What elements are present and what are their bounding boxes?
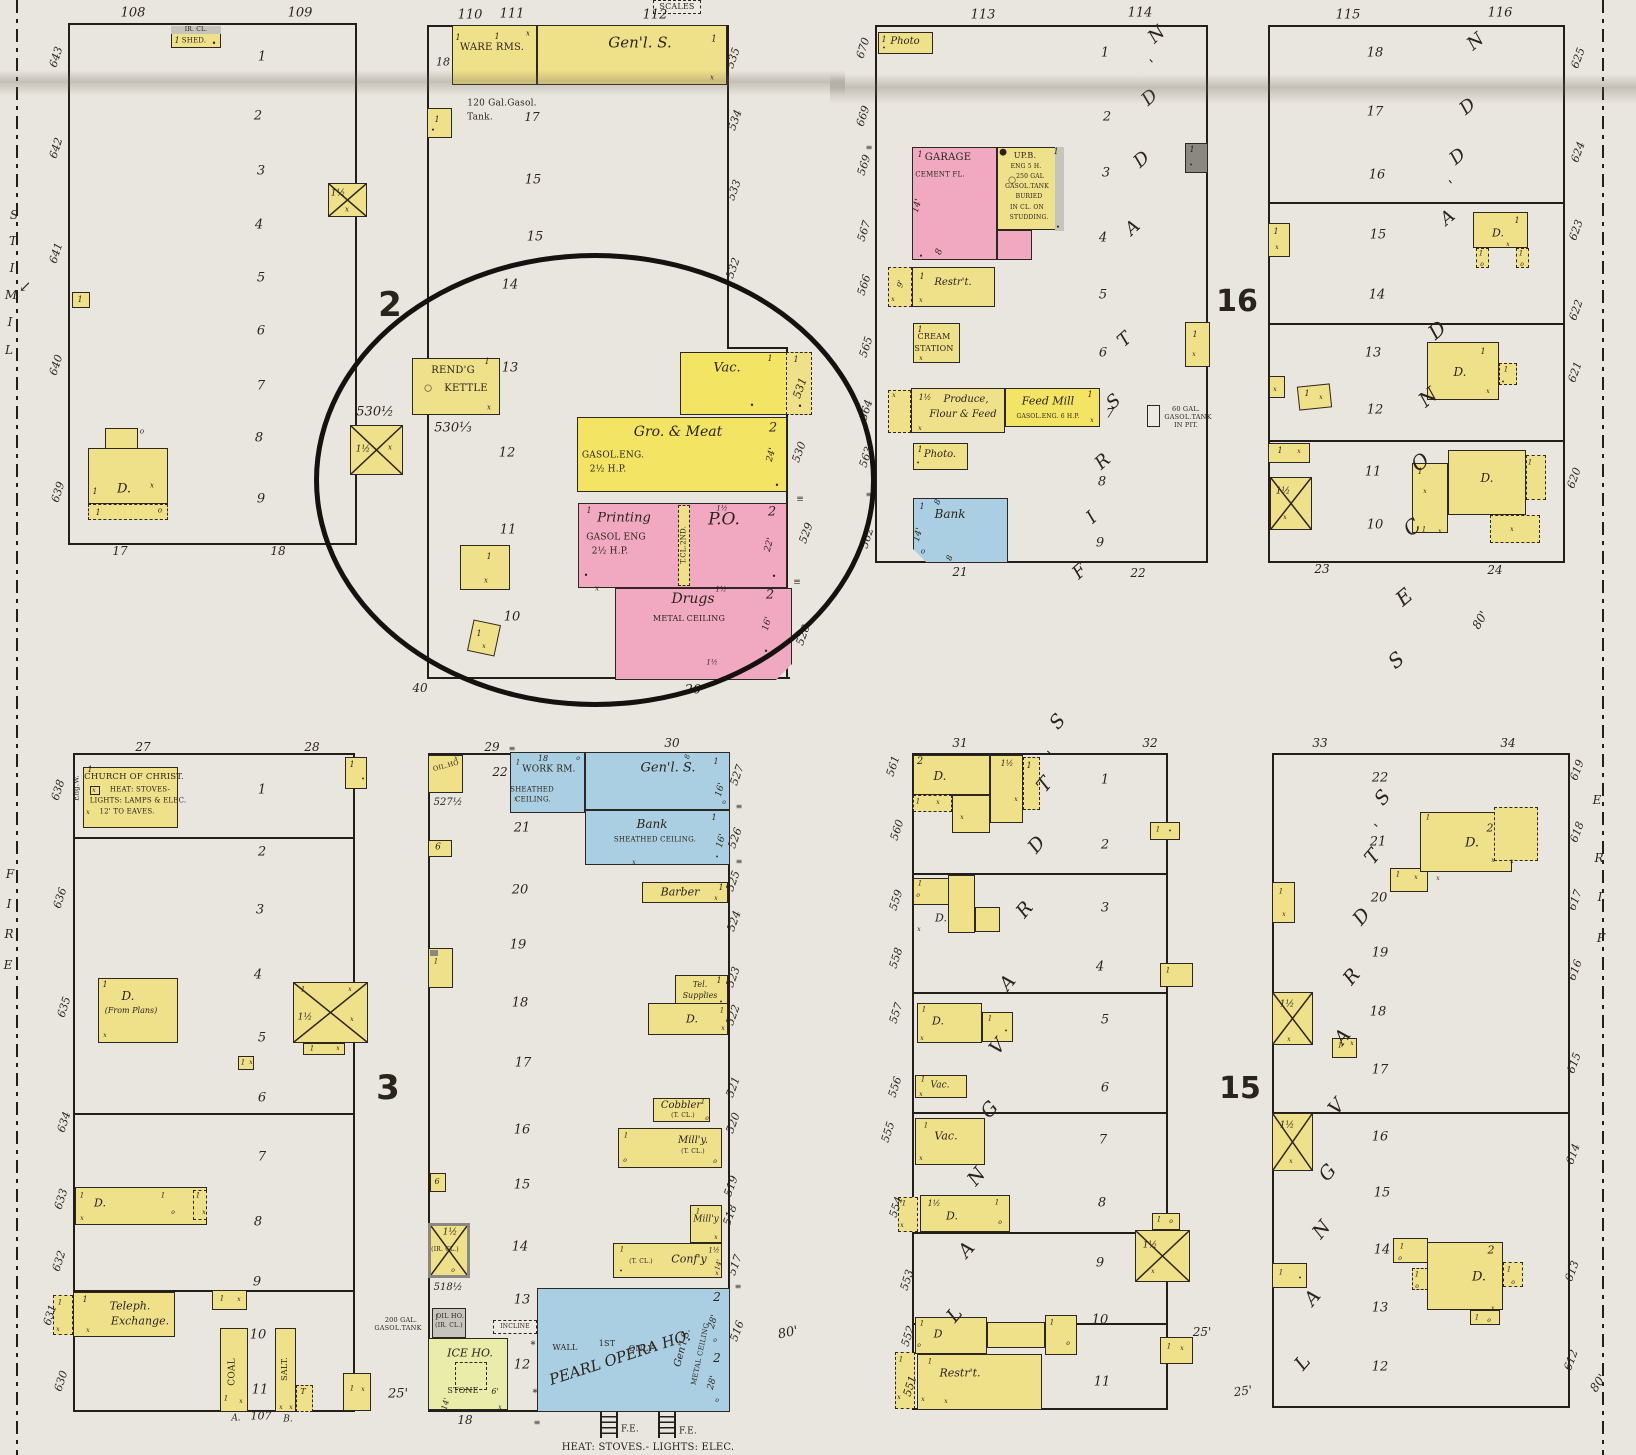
block-108-109-label-11: 5	[257, 272, 265, 285]
block-27-28-label-24: 5	[258, 1032, 266, 1045]
block-31-32-label-51: 1	[922, 1007, 926, 1014]
block-113-114-label-36: x	[891, 297, 894, 303]
block-27-28-label-34: x	[103, 1033, 106, 1039]
block-31-32-building-8	[975, 907, 1000, 932]
block-113-114-label-83: IN PIT.	[1174, 422, 1198, 429]
block-27-28-label-21: 2	[258, 846, 266, 859]
block-29-30-label-75: 1	[620, 1247, 624, 1254]
block-108-109-label-15: 9	[257, 493, 265, 506]
boundary-label-17: 80'	[1588, 1372, 1608, 1394]
block-33-34-label-44: 1	[1415, 1272, 1419, 1279]
block-113-114-label-64: 4	[1099, 232, 1107, 245]
block-27-28-label-7: 632	[51, 1249, 68, 1272]
block-27-28-label-25: 6	[258, 1092, 266, 1105]
block-27-28-label-29: 10	[250, 1329, 267, 1342]
block-29-30-label-107: 2	[713, 1352, 721, 1364]
block-110-112-label-77: 40	[412, 682, 427, 694]
block-33-34-label-46: D.	[1472, 1271, 1486, 1284]
map-line-14	[1268, 440, 1565, 442]
block-115-116-label-20: D.	[1453, 366, 1466, 378]
block-33-34-label-38: 1½	[1280, 1122, 1294, 1131]
block-29-30-label-54: Tel.	[693, 981, 708, 989]
boundary-label-12: R	[1594, 852, 1603, 864]
block-31-32-label-20: 8	[1098, 1197, 1106, 1210]
block-15-number: 15	[1219, 1074, 1261, 1104]
block-29-30-label-110: o	[715, 1398, 719, 1404]
block-29-30-label-98: 25'	[388, 1388, 408, 1401]
block-27-28-label-3: 636	[52, 886, 69, 909]
block-113-114-label-81: 60 GAL.	[1172, 406, 1200, 413]
block-31-32-building-5	[1150, 822, 1180, 840]
block-27-28-label-68: 107	[251, 1411, 272, 1422]
block-113-114-label-68: 9	[1096, 537, 1104, 550]
block-29-30-building-3	[430, 950, 438, 956]
block-29-30-label-32: 12	[514, 1359, 531, 1372]
block-27-28-label-50: Teleph.	[110, 1301, 151, 1312]
block-33-34-label-7: 17	[1372, 1064, 1389, 1077]
block-27-28-label-6: 633	[53, 1187, 70, 1210]
block-33-34-label-29: x	[1414, 875, 1417, 881]
block-29-30-label-93: ICE HO.	[447, 1348, 493, 1359]
block-33-34-label-27: x	[1510, 859, 1513, 865]
block-108-109-label-22: 1	[77, 296, 82, 304]
block-115-116-label-32: D.	[1480, 472, 1493, 484]
block-115-116-label-4: 16	[1369, 169, 1386, 182]
boundary-label-4: I	[8, 316, 13, 328]
block-29-30-label-17: ≡	[735, 1283, 742, 1291]
block-31-32-label-49: 1	[1166, 968, 1170, 975]
block-113-114-building-14	[1185, 322, 1210, 367]
block-113-114-label-5: 567	[856, 219, 873, 242]
x-cross-icon	[1136, 1231, 1189, 1281]
block-115-116-label-56: 23	[1314, 563, 1329, 575]
block-115-116-label-55: 620	[1565, 466, 1583, 489]
block-27-28-label-46: 1	[161, 1193, 165, 1200]
block-113-114-label-31: 1	[1053, 148, 1058, 156]
block-29-30-label-58: D.	[686, 1014, 698, 1025]
block-110-112-label-4: WARE RMS.	[460, 43, 524, 53]
block-31-32-label-60: x	[919, 1156, 922, 1162]
block-113-114-label-40: 1	[917, 326, 922, 334]
block-33-34-label-51: 1	[1475, 1315, 1479, 1322]
block-108-109-label-4: 641	[48, 241, 65, 264]
block-108-109-label-20: 1	[174, 37, 179, 45]
block-27-28-label-48: 1	[196, 1193, 200, 1200]
block-113-114-label-15: •	[882, 46, 886, 52]
block-29-30-label-49: x	[632, 860, 635, 866]
block-29-30-label-114: F.E.	[679, 1428, 697, 1437]
map-line-15	[73, 837, 355, 839]
block-29-30-label-57: •	[719, 1000, 723, 1006]
block-29-30-label-24: 20	[512, 884, 529, 897]
block-108-109-label-18: IR. CL.	[185, 27, 208, 33]
block-108-109-label-0: 108	[121, 7, 146, 20]
block-3-number: 3	[376, 1071, 400, 1105]
block-113-114-label-55: Bank	[935, 508, 966, 520]
block-29-30-label-51: Barber	[661, 887, 700, 898]
block-29-30-label-115: 18	[457, 1414, 472, 1426]
block-29-30-label-29: 15	[514, 1179, 531, 1192]
block-108-109-label-21: •	[212, 40, 217, 48]
block-29-30-label-68: o	[623, 1158, 627, 1164]
block-31-32-label-56: 1	[921, 1077, 925, 1084]
block-115-116-label-51: 624	[1569, 140, 1587, 163]
block-31-32-label-22: 10	[1092, 1314, 1109, 1327]
block-33-34-label-2: 22	[1372, 772, 1389, 785]
block-29-30-label-15: ≡	[736, 803, 743, 811]
block-31-32-label-74: 1	[1050, 1320, 1054, 1327]
block-115-116-label-2: 18	[1367, 47, 1384, 60]
block-29-30-label-66: (T. CL.)	[681, 1149, 705, 1155]
block-115-116-label-11: 1	[1273, 228, 1278, 236]
block-31-32-label-36: D.	[933, 770, 946, 782]
block-29-30-label-37: 1	[516, 760, 520, 767]
block-29-30-label-82: 6	[434, 1178, 439, 1186]
block-31-32-label-15: 3	[1101, 902, 1109, 915]
block-31-32-label-5: 558	[888, 946, 905, 969]
block-115-116-label-37: x	[1438, 529, 1441, 535]
block-33-34-label-26: x	[1491, 858, 1494, 864]
block-113-114-label-56: 1	[919, 503, 924, 511]
block-115-116-label-5: 15	[1370, 229, 1387, 242]
block-29-30-label-74: Conf'y	[671, 1254, 706, 1265]
block-110-112-label-19: •	[431, 128, 435, 135]
dwelling-lot5	[917, 1003, 982, 1043]
block-29-30-label-3: 527	[728, 763, 746, 786]
block-27-28-label-63: x	[289, 1405, 292, 1411]
block-110-112-label-0: 110	[458, 9, 483, 22]
block-108-109-label-23: 1½	[331, 190, 345, 199]
block-33-34-label-34: 1½	[1280, 1001, 1294, 1010]
block-29-30-label-14: 516	[728, 1319, 746, 1342]
block-27-28-label-69: B.	[283, 1416, 292, 1425]
dwelling-lot10	[915, 1317, 987, 1354]
block-33-34-label-3: 21	[1370, 836, 1387, 849]
block-29-30-label-2: ≡	[509, 745, 516, 753]
block-113-114-label-61: 1	[1101, 47, 1109, 60]
block-31-32-label-50: D.	[932, 1016, 944, 1027]
boundary-label-7: F	[6, 868, 14, 880]
block-33-34-label-9: 15	[1374, 1187, 1391, 1200]
block-29-30-label-27: 17	[515, 1057, 532, 1070]
block-29-30-label-36: CEILING.	[515, 797, 551, 804]
block-29-30-label-20: x	[454, 756, 457, 762]
block-115-116-label-7: 13	[1365, 347, 1382, 360]
block-113-114-label-85: •	[1189, 163, 1193, 169]
boundary-label-16: 80'	[1470, 609, 1490, 631]
block-29-30-label-84: (IR. CL.)	[431, 1247, 459, 1253]
block-29-30-label-86: 518½	[434, 1283, 463, 1293]
block-33-34-label-30: x	[1436, 876, 1439, 882]
block-115-116-label-9: 11	[1365, 466, 1382, 479]
block-31-32-label-61: 1	[902, 1201, 906, 1208]
block-113-114-label-4: 569	[856, 153, 873, 176]
block-115-116-label-26: 1	[1304, 390, 1309, 398]
block-27-28-label-43: D.	[94, 1198, 106, 1209]
block-29-30-label-80: 6	[435, 844, 441, 853]
boundary-label-1: T	[9, 235, 17, 247]
block-115-116-label-24: •	[1501, 380, 1505, 386]
block-113-114-label-44: Flour & Feed	[929, 410, 996, 420]
block-31-32-label-8: 555	[880, 1120, 897, 1143]
block-113-114-label-47: Feed Mill	[1022, 396, 1074, 407]
block-110-112-label-6: 1	[494, 33, 499, 41]
block-108-109-label-14: 8	[255, 432, 263, 445]
map-line-13	[1268, 323, 1565, 325]
block-27-28-label-61: SALT.	[281, 1357, 289, 1381]
block-33-34-label-31: 1	[1426, 815, 1430, 822]
block-110-112-label-1: 111	[500, 8, 525, 21]
block-29-30-label-31: 13	[514, 1294, 531, 1307]
block-33-34-label-25: 2	[1487, 823, 1494, 834]
block-33-34-label-40: 1	[1279, 1270, 1283, 1277]
block-29-30-label-21: 527½	[434, 798, 463, 808]
block-113-114-label-7: 565	[858, 335, 875, 358]
block-29-30-label-105: 2	[713, 1291, 721, 1303]
block-33-34-label-41: •	[1298, 1276, 1302, 1282]
block-29-30-label-59: 1	[720, 1008, 724, 1015]
block-31-32-building-23	[1160, 1337, 1193, 1364]
block-113-114-label-52: Photo.	[924, 450, 956, 460]
block-110-112-label-7: x	[526, 31, 530, 38]
block-31-32-label-2: 561	[885, 754, 902, 777]
block-29-30-label-63: 1	[701, 1099, 705, 1106]
block-113-114-label-24: ENG 5 H.	[1011, 164, 1042, 170]
block-110-112-label-17: 17	[524, 111, 539, 123]
block-31-32-label-14: 2	[1101, 839, 1109, 852]
block-27-28-label-26: 7	[258, 1151, 266, 1164]
block-113-114-label-37: x	[919, 298, 922, 304]
block-113-114-label-48: GASOL.ENG. 6 H.P.	[1016, 414, 1079, 420]
boundary-label-0: S	[10, 209, 18, 221]
block-29-30-label-40: Gen'l. S.	[640, 762, 695, 775]
block-27-28-label-44: 1	[80, 1193, 84, 1200]
block-29-30-label-33: 18	[538, 755, 548, 763]
map-line-21	[912, 1232, 1168, 1234]
block-108-109-label-3: 642	[48, 136, 65, 159]
block-110-112-label-9: 1	[711, 36, 717, 45]
block-31-32-label-81: x	[897, 1395, 900, 1401]
block-33-34-label-43: o	[1398, 1256, 1402, 1262]
block-31-32-label-35: 2	[917, 757, 923, 767]
block-113-114-label-86: 1	[1192, 331, 1197, 339]
block-29-30-label-64: o	[705, 1116, 709, 1122]
block-33-34-label-24: D.	[1465, 837, 1479, 850]
block-31-32-label-66: o	[998, 1220, 1002, 1226]
block-27-28-label-1: 28	[304, 741, 319, 753]
block-27-28-label-28: 9	[253, 1276, 261, 1289]
block-27-28-building-2	[345, 757, 367, 789]
block-29-30-label-87: OIL HO.	[436, 1313, 464, 1320]
block-27-28-label-23: 4	[254, 969, 262, 982]
block-31-32-label-82: 1	[1167, 1344, 1171, 1351]
block-29-30-label-69: o	[713, 1159, 717, 1165]
block-113-114-label-43: Produce,	[943, 395, 988, 405]
block-29-30-label-55: Supplies	[683, 992, 718, 1000]
block-31-32-label-69: 1½	[1143, 1242, 1157, 1251]
block-27-28-label-18: 1	[349, 761, 354, 769]
block-31-32-label-67: 1	[1157, 1217, 1161, 1224]
block-115-116-label-0: 115	[1336, 9, 1361, 22]
block-31-32-label-72: o	[917, 1343, 921, 1349]
block-31-32-label-62: x	[900, 1223, 903, 1229]
block-113-114-label-71: F	[1069, 561, 1090, 583]
block-27-28-building-15	[343, 1373, 371, 1411]
block-31-32-building-19	[987, 1322, 1045, 1348]
block-29-30-label-72: x	[714, 1235, 717, 1241]
block-31-32-label-58: Vac.	[934, 1131, 957, 1142]
block-113-114-label-54: •	[916, 461, 920, 467]
map-line-16	[73, 1113, 355, 1115]
block-27-28-label-41: 1	[241, 1060, 245, 1067]
boundary-label-5: L	[5, 344, 13, 356]
block-113-114-label-53: 1	[917, 446, 922, 454]
block-33-34-label-28: 1	[1396, 872, 1400, 879]
block-113-114-label-13: Photo	[890, 37, 919, 47]
block-29-30-label-30: 14	[512, 1241, 529, 1254]
block-31-32-building-17	[1135, 1230, 1190, 1282]
block-113-114-label-25: 250 GAL	[1016, 174, 1044, 180]
block-113-114-label-82: GASOL.TANK	[1164, 414, 1211, 421]
block-33-34-label-6: 18	[1370, 1006, 1387, 1019]
block-113-114-label-50: x	[1090, 418, 1093, 424]
block-115-116-label-31: x	[1283, 515, 1286, 521]
block-29-30-label-78: •	[619, 1269, 623, 1275]
boundary-label-9: R	[4, 928, 13, 940]
block-31-32-label-23: 11	[1094, 1376, 1111, 1389]
block-29-30-label-113: F.E.	[621, 1426, 639, 1435]
block-29-30-label-116: HEAT: STOVES.- LIGHTS: ELEC.	[562, 1443, 735, 1453]
block-113-114-label-3: 669	[855, 104, 872, 127]
block-27-28-label-52: 1	[82, 1296, 87, 1304]
boundary-label-13: I	[1598, 891, 1603, 903]
block-29-30-label-94: STONE	[447, 1387, 478, 1395]
block-108-109-label-6: 639	[50, 480, 67, 503]
block-31-32-label-76: Restr't.	[939, 1368, 980, 1379]
block-115-116-label-21: 1	[1480, 348, 1485, 356]
block-110-112-label-21: 15	[527, 231, 544, 244]
block-27-28-label-38: x	[348, 987, 351, 993]
block-33-34-building-2	[1494, 807, 1538, 861]
block-33-34-label-54: 618	[1568, 820, 1586, 843]
block-27-28-building-11	[212, 1290, 247, 1310]
block-110-112-label-5: 1	[455, 34, 460, 42]
block-115-116-label-50: 625	[1569, 46, 1587, 69]
block-31-32-label-45: 1	[918, 881, 922, 888]
block-27-28-label-27: 8	[254, 1216, 262, 1229]
block-29-30-label-41: 1	[713, 758, 718, 766]
dwelling-lot3	[948, 875, 975, 933]
block-115-116-label-35: x	[1423, 489, 1426, 495]
block-29-30-label-22: 22	[492, 766, 507, 778]
block-115-116-label-33: 1	[1528, 460, 1532, 467]
block-108-109-building-4	[105, 428, 138, 450]
block-33-34-label-47: 2	[1488, 1245, 1495, 1256]
block-113-114-label-41: x	[919, 356, 922, 362]
block-29-30-label-26: 18	[512, 997, 529, 1010]
block-29-30-label-16: ≡	[736, 858, 743, 866]
block-113-114-label-62: 2	[1103, 111, 1111, 124]
block-29-30-label-71: 1	[696, 1209, 700, 1216]
block-113-114-label-63: 3	[1102, 167, 1110, 180]
block-29-30-label-61: Cobbler	[661, 1101, 701, 1111]
block-27-28-label-20: 1	[258, 784, 266, 797]
block-29-30-label-112: *	[533, 1389, 538, 1399]
block-115-116-label-8: 12	[1367, 404, 1384, 417]
map-line-20	[912, 1112, 1168, 1114]
block-110-112-label-20: 15	[525, 174, 542, 187]
gasoline-tank-pit	[1147, 405, 1160, 427]
block-29-30-label-85: o	[451, 1268, 455, 1274]
block-113-114-label-16: GARAGE	[925, 153, 971, 163]
block-33-34-label-52: o	[1487, 1318, 1491, 1324]
block-31-32-label-3: 560	[889, 818, 906, 841]
block-108-109-label-30: o	[140, 429, 144, 436]
block-29-30-label-34: WORK RM.	[522, 766, 575, 775]
map-line-19	[912, 992, 1168, 994]
block-31-32-label-21: 9	[1096, 1257, 1104, 1270]
block-29-30-label-81: 1	[434, 959, 438, 966]
block-29-30-label-65: Mill'y.	[678, 1136, 708, 1146]
circled-area	[314, 253, 876, 707]
dwelling-lot1	[913, 755, 990, 795]
block-33-34-label-36: 1	[1338, 1043, 1342, 1050]
block-113-114-label-33: Restr't.	[934, 278, 971, 288]
block-29-30-label-79: x	[715, 1271, 718, 1277]
block-113-114-label-0: 113	[971, 9, 996, 22]
block-29-30-label-73: (T. CL.)	[629, 1259, 653, 1265]
block-108-109-label-25: D.	[117, 483, 131, 496]
block-27-28-label-12: CHURCH OF CHRIST.	[84, 773, 184, 782]
block-115-116-building-8	[1268, 443, 1310, 463]
block-31-32-label-44: •	[1168, 829, 1172, 835]
block-31-32-label-75: o	[1066, 1341, 1070, 1347]
block-113-114-label-11: ≡	[866, 144, 873, 152]
block-110-112-label-18: 1	[434, 116, 439, 124]
block-108-109-label-28: 1	[95, 509, 100, 517]
block-115-116-label-1: 116	[1488, 7, 1513, 20]
block-31-32-label-1: 32	[1142, 737, 1157, 749]
block-31-32-label-39: 1	[916, 799, 920, 806]
block-31-32-label-80: 1	[899, 1357, 903, 1364]
block-115-116-label-12: x	[1275, 245, 1278, 251]
block-29-30-label-35: SHEATHED	[510, 787, 554, 794]
block-31-32-label-64: D.	[946, 1211, 958, 1222]
block-29-30-label-67: 1	[624, 1133, 628, 1140]
block-29-30-label-62: (T. CL.)	[671, 1113, 695, 1119]
block-33-34-label-45: o	[1415, 1284, 1419, 1290]
block-27-28-label-35: 1½	[298, 1014, 312, 1023]
block-31-32-label-18: 6	[1101, 1082, 1109, 1095]
block-115-116-label-10: 10	[1367, 519, 1384, 532]
block-115-116-label-18: o	[1480, 262, 1484, 268]
block-27-28-label-17: x	[86, 810, 89, 816]
block-113-114-label-21: •	[919, 254, 923, 261]
block-113-114-label-29: STUDDING.	[1010, 215, 1049, 221]
block-115-116-label-38: x	[1510, 527, 1513, 533]
block-31-32-label-4: 559	[888, 888, 905, 911]
block-33-34-label-1: 34	[1500, 737, 1515, 749]
block-115-116-label-15: x	[1506, 242, 1509, 248]
block-33-34-label-35: x	[1287, 1037, 1290, 1043]
block-108-109-label-8: 2	[254, 110, 262, 123]
boundary-label-6: ↙	[19, 280, 32, 295]
garage	[912, 147, 997, 260]
block-115-116-building-7	[1297, 383, 1332, 410]
block-27-28-label-0: 27	[135, 741, 150, 753]
block-33-34-label-12: 12	[1372, 1361, 1389, 1374]
block-29-30-label-53: x	[714, 896, 717, 902]
